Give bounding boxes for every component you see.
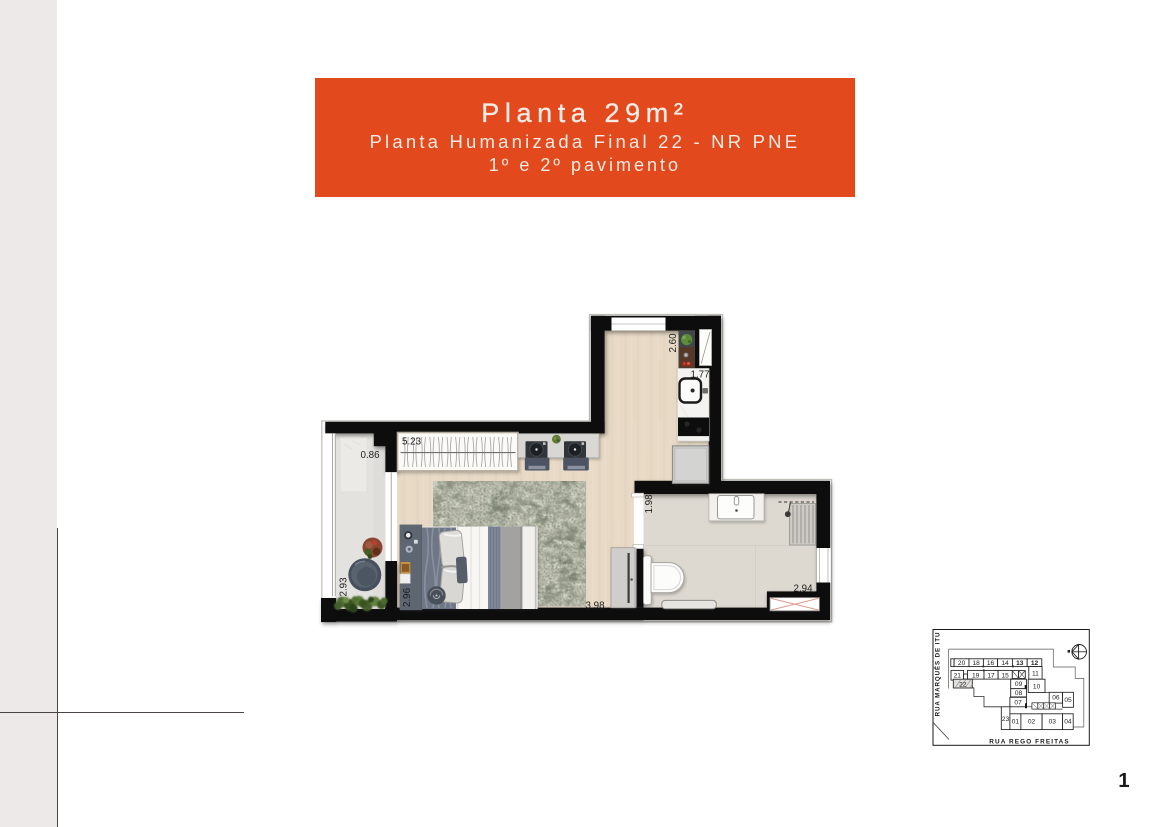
svg-text:14: 14 <box>1001 660 1009 667</box>
svg-text:10: 10 <box>1033 683 1041 690</box>
svg-text:12: 12 <box>1031 660 1039 667</box>
svg-text:2.94: 2.94 <box>794 584 814 595</box>
svg-text:09: 09 <box>1015 681 1023 688</box>
svg-text:21: 21 <box>954 673 962 680</box>
svg-text:04: 04 <box>1064 719 1072 726</box>
svg-text:2.96: 2.96 <box>402 587 413 607</box>
svg-text:23: 23 <box>1002 716 1010 723</box>
svg-text:11: 11 <box>1032 670 1039 677</box>
svg-text:03: 03 <box>1049 719 1057 726</box>
svg-text:3.98: 3.98 <box>586 601 606 612</box>
svg-text:5.23: 5.23 <box>402 437 422 448</box>
svg-text:1.77: 1.77 <box>691 370 710 381</box>
svg-text:22: 22 <box>959 681 967 688</box>
svg-text:07: 07 <box>1014 699 1022 706</box>
svg-text:RUA REGO FREITAS: RUA REGO FREITAS <box>989 738 1069 745</box>
svg-text:17: 17 <box>987 672 995 679</box>
svg-text:08: 08 <box>1015 690 1023 697</box>
svg-text:0.86: 0.86 <box>361 450 381 461</box>
svg-text:19: 19 <box>972 672 980 679</box>
svg-text:13: 13 <box>1016 660 1024 667</box>
svg-text:02: 02 <box>1028 719 1036 726</box>
svg-text:16: 16 <box>987 660 995 667</box>
svg-text:06: 06 <box>1052 695 1060 702</box>
svg-text:20: 20 <box>958 660 966 667</box>
svg-text:2.93: 2.93 <box>339 577 350 597</box>
svg-text:RUA MARQUÊS DE ITU: RUA MARQUÊS DE ITU <box>934 632 942 717</box>
svg-text:1.98: 1.98 <box>644 494 655 514</box>
svg-text:18: 18 <box>973 660 981 667</box>
svg-text:2.60: 2.60 <box>668 333 679 353</box>
svg-text:01: 01 <box>1012 719 1020 726</box>
svg-text:15: 15 <box>1002 672 1010 679</box>
svg-text:05: 05 <box>1064 697 1072 704</box>
